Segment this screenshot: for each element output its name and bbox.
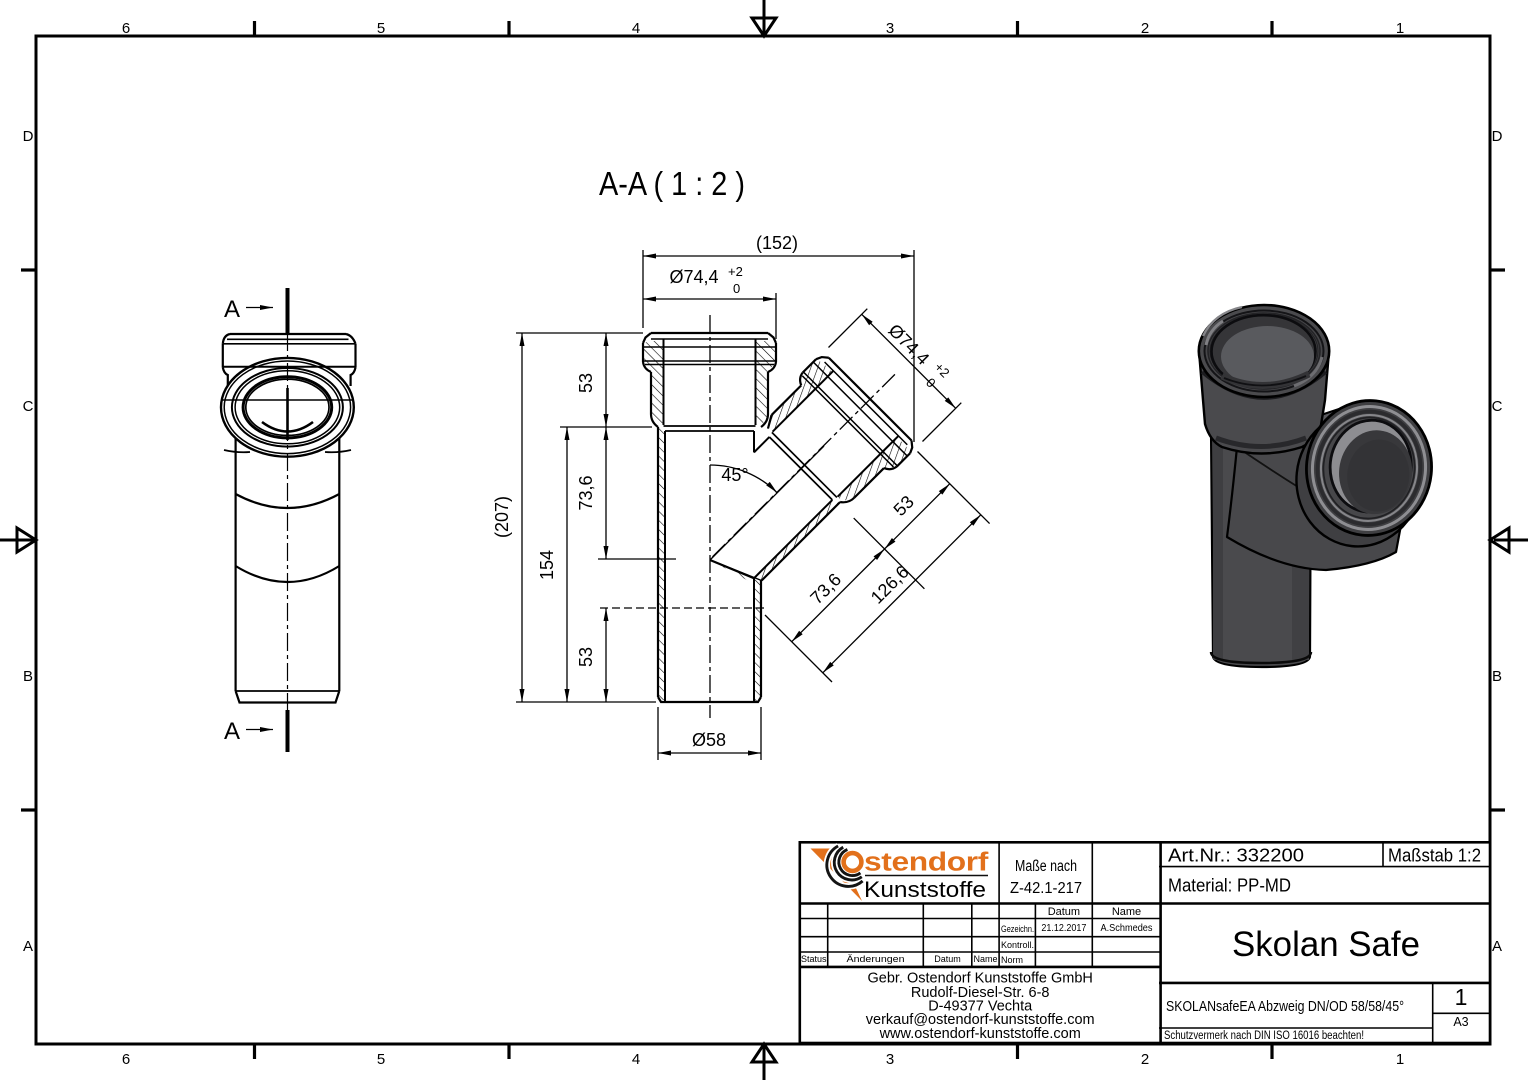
svg-text:Z-42.1-217: Z-42.1-217 xyxy=(1010,880,1082,897)
svg-text:53: 53 xyxy=(576,647,596,667)
svg-text:A: A xyxy=(1492,938,1502,955)
svg-text:73,6: 73,6 xyxy=(576,475,596,510)
svg-text:Kunststoffe: Kunststoffe xyxy=(864,877,986,902)
svg-text:stendorf: stendorf xyxy=(864,849,989,877)
svg-text:1: 1 xyxy=(1396,20,1404,37)
svg-text:A3: A3 xyxy=(1453,1015,1468,1029)
svg-text:D: D xyxy=(1492,128,1503,145)
svg-text:0: 0 xyxy=(733,281,740,296)
svg-text:5: 5 xyxy=(377,20,385,37)
svg-text:21.12.2017: 21.12.2017 xyxy=(1041,922,1086,934)
svg-text:53: 53 xyxy=(890,492,918,520)
svg-text:2: 2 xyxy=(1141,1051,1149,1068)
svg-text:Art.Nr.: 332200: Art.Nr.: 332200 xyxy=(1168,845,1304,866)
svg-text:Status: Status xyxy=(801,954,827,964)
svg-text:Datum: Datum xyxy=(934,954,961,964)
svg-text:Ø58: Ø58 xyxy=(692,730,726,750)
svg-text:3: 3 xyxy=(886,1051,894,1068)
svg-text:3: 3 xyxy=(886,20,894,37)
svg-text:Kontroll.: Kontroll. xyxy=(1001,940,1034,950)
svg-text:B: B xyxy=(1492,668,1502,685)
svg-text:2: 2 xyxy=(1141,20,1149,37)
svg-text:5: 5 xyxy=(377,1051,385,1068)
svg-text:(207): (207) xyxy=(492,496,512,538)
svg-text:A: A xyxy=(23,938,33,955)
svg-text:4: 4 xyxy=(632,20,640,37)
svg-text:45°: 45° xyxy=(721,465,748,485)
svg-text:154: 154 xyxy=(537,550,557,580)
svg-text:Norm: Norm xyxy=(1001,955,1023,965)
svg-text:A-A ( 1 : 2 ): A-A ( 1 : 2 ) xyxy=(599,165,745,202)
svg-text:Gezeichn.: Gezeichn. xyxy=(1001,924,1034,934)
svg-text:73,6: 73,6 xyxy=(806,569,845,608)
svg-text:D: D xyxy=(23,128,34,145)
svg-text:Ø74,4: Ø74,4 xyxy=(669,267,718,287)
svg-text:4: 4 xyxy=(632,1051,640,1068)
svg-text:A.Schmedes: A.Schmedes xyxy=(1101,922,1153,934)
svg-text:Skolan Safe: Skolan Safe xyxy=(1232,925,1420,964)
svg-text:Material: PP-MD: Material: PP-MD xyxy=(1168,875,1291,896)
svg-text:Name: Name xyxy=(1112,906,1141,918)
svg-text:www.ostendorf-kunststoffe.com: www.ostendorf-kunststoffe.com xyxy=(879,1026,1081,1042)
svg-text:B: B xyxy=(23,668,33,685)
svg-text:(152): (152) xyxy=(756,233,798,253)
svg-text:1: 1 xyxy=(1455,984,1468,1010)
svg-text:A: A xyxy=(224,718,240,745)
svg-text:1: 1 xyxy=(1396,1051,1404,1068)
svg-text:Maßstab 1:2: Maßstab 1:2 xyxy=(1388,845,1481,866)
svg-text:Maße nach: Maße nach xyxy=(1015,858,1077,875)
svg-text:+2: +2 xyxy=(728,264,743,279)
svg-text:126,6: 126,6 xyxy=(867,562,913,608)
svg-text:A: A xyxy=(224,296,240,323)
svg-text:Änderungen: Änderungen xyxy=(847,954,905,964)
svg-text:53: 53 xyxy=(576,373,596,393)
svg-text:Schutzvermerk nach DIN ISO 160: Schutzvermerk nach DIN ISO 16016 beachte… xyxy=(1164,1030,1364,1042)
svg-text:C: C xyxy=(23,398,34,415)
svg-text:Datum: Datum xyxy=(1048,906,1080,918)
svg-text:6: 6 xyxy=(122,20,130,37)
svg-text:6: 6 xyxy=(122,1051,130,1068)
svg-text:SKOLANsafeEA Abzweig DN/OD 58/: SKOLANsafeEA Abzweig DN/OD 58/58/45° xyxy=(1166,998,1404,1015)
svg-text:C: C xyxy=(1492,398,1503,415)
svg-text:Name: Name xyxy=(973,954,997,964)
